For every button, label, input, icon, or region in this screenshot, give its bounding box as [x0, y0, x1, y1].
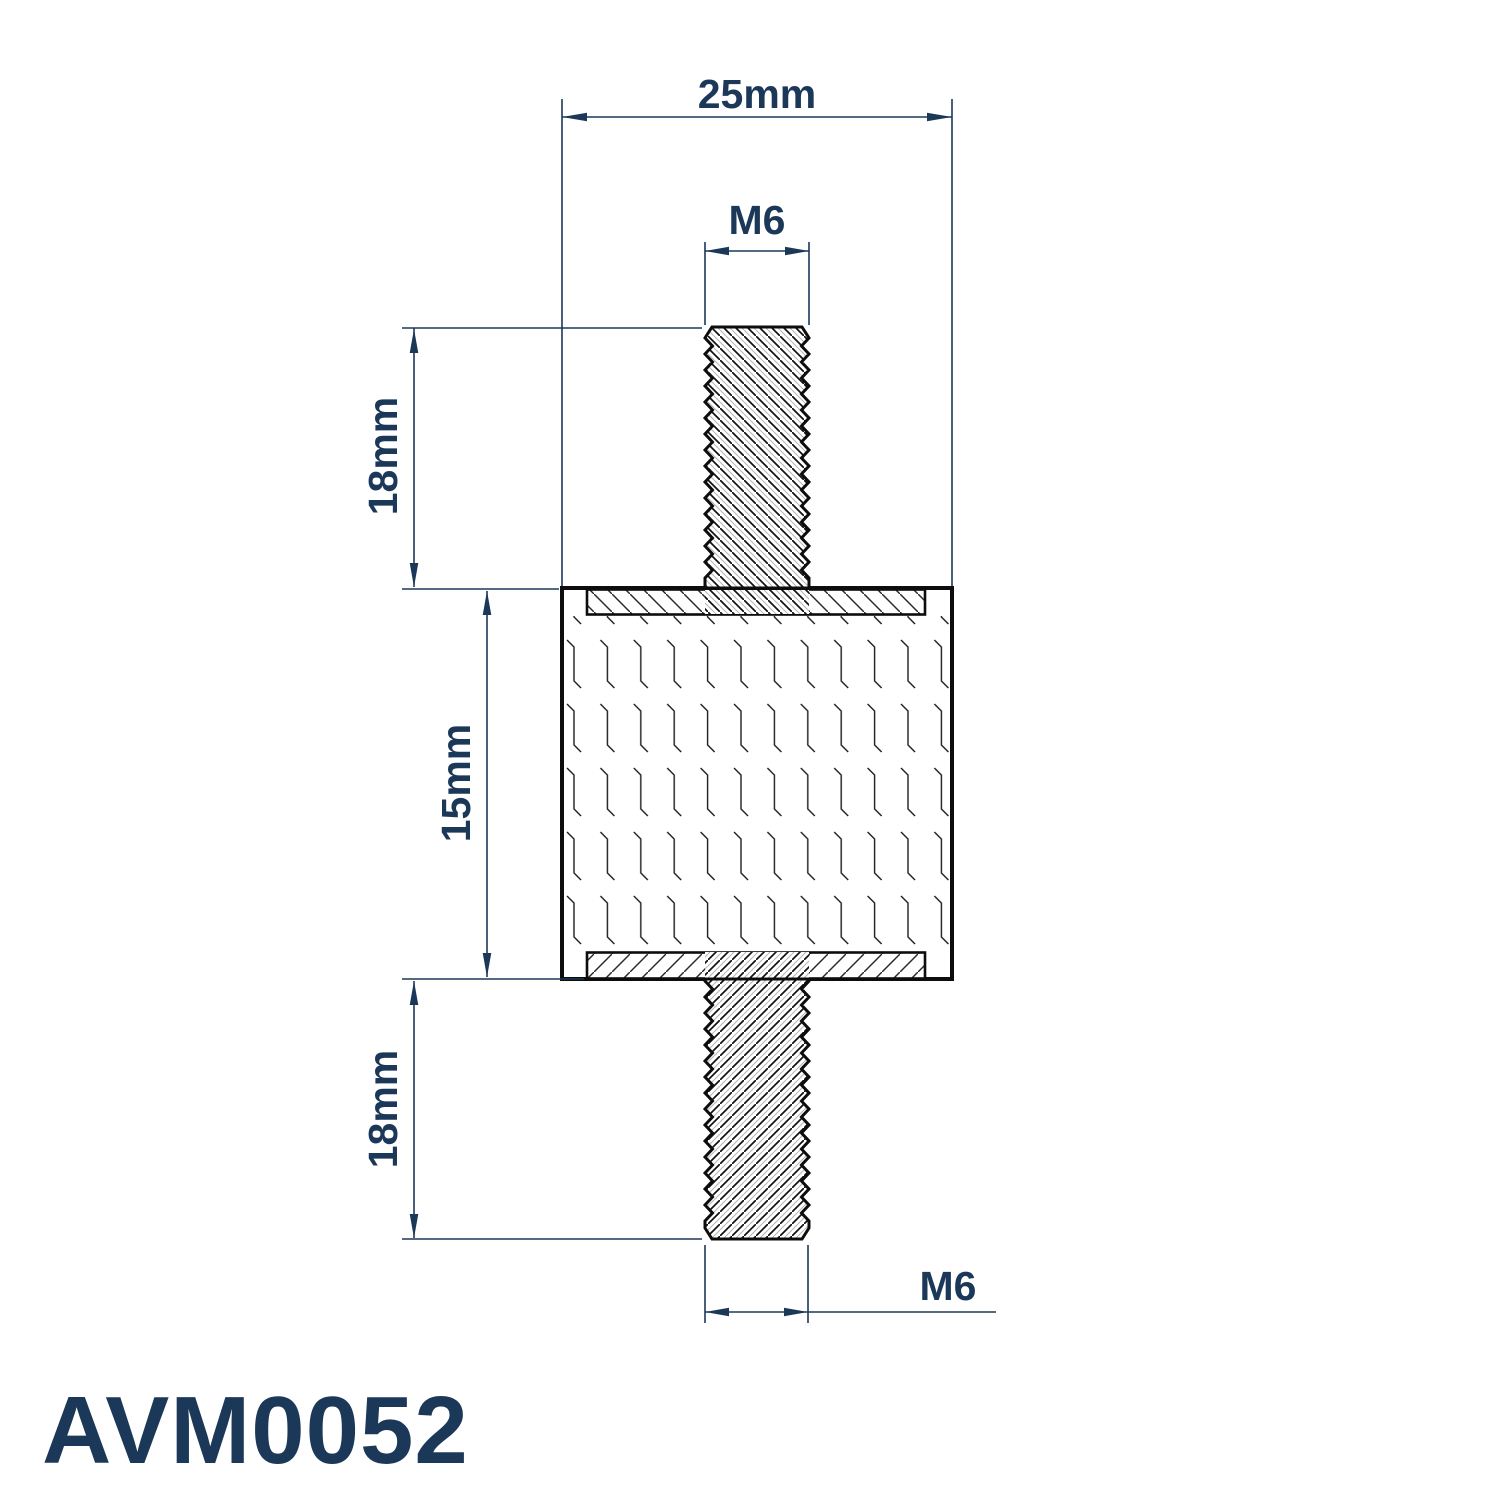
arrow-left-icon [705, 1308, 729, 1317]
dimension-bottom-thread: M6 [705, 1245, 996, 1323]
part-number: AVM0052 [42, 1377, 469, 1484]
bottom-stud-root [705, 952, 809, 978]
dimension-bottom-stud-length: 18mm [360, 981, 702, 1239]
dim-bottom-thread-label: M6 [920, 1263, 977, 1309]
arrow-right-icon [785, 247, 809, 256]
arrow-up-icon [410, 329, 419, 353]
arrow-down-icon [410, 1214, 419, 1238]
part-view [562, 327, 952, 1239]
rubber-texture [565, 616, 949, 950]
arrow-left-icon [562, 113, 587, 122]
top-stud-root [705, 590, 809, 614]
drawing-svg: 25mm M6 18mm 15mm 18mm [0, 0, 1500, 1500]
arrow-down-icon [410, 563, 419, 587]
arrow-right-icon [927, 113, 952, 122]
dimension-top-stud-length: 18mm [360, 328, 702, 589]
arrow-down-icon [483, 953, 492, 977]
dim-body-height-label: 15mm [433, 724, 479, 843]
dimension-body-height: 15mm [402, 591, 584, 979]
top-threaded-stud [705, 327, 809, 588]
dim-top-thread-label: M6 [729, 197, 786, 243]
arrow-left-icon [705, 247, 729, 256]
bottom-threaded-stud [705, 979, 809, 1239]
arrow-up-icon [410, 981, 419, 1005]
technical-drawing-canvas: 25mm M6 18mm 15mm 18mm [0, 0, 1500, 1500]
dim-bottom-stud-length-label: 18mm [360, 1050, 406, 1169]
arrow-up-icon [483, 591, 492, 615]
dim-overall-width-label: 25mm [698, 71, 817, 117]
dim-top-stud-length-label: 18mm [360, 397, 406, 516]
dimension-top-thread: M6 [705, 197, 809, 325]
arrow-right-icon [784, 1308, 808, 1317]
